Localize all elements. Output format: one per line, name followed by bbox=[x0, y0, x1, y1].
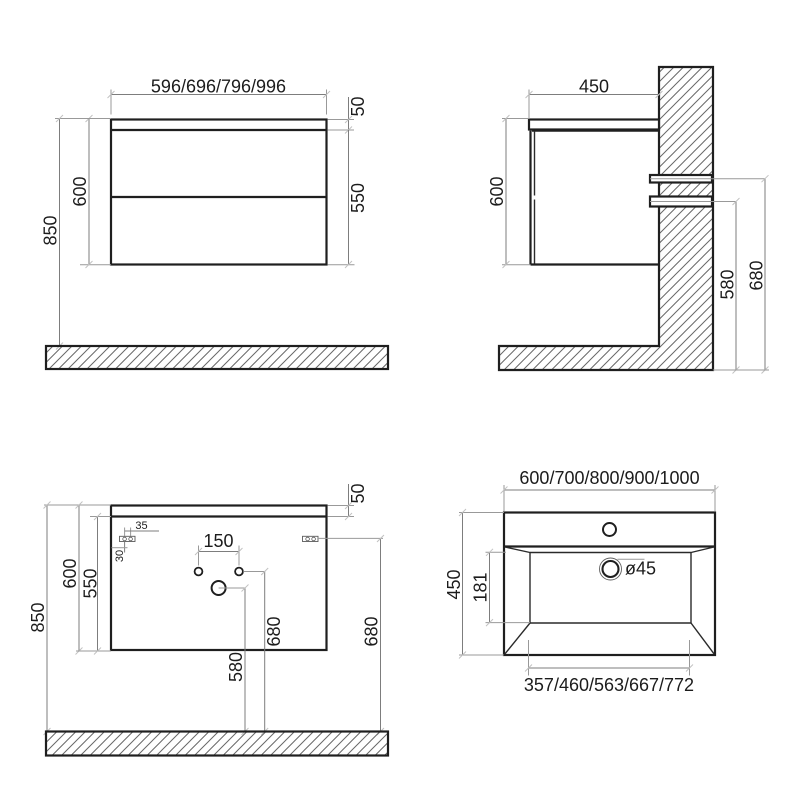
svg-text:600/700/800/900/1000: 600/700/800/900/1000 bbox=[519, 468, 699, 488]
svg-text:550: 550 bbox=[81, 568, 101, 598]
svg-text:181: 181 bbox=[471, 572, 491, 602]
svg-text:ø45: ø45 bbox=[625, 559, 656, 579]
svg-text:596/696/796/996: 596/696/796/996 bbox=[151, 77, 286, 97]
svg-text:680: 680 bbox=[747, 260, 767, 290]
svg-text:850: 850 bbox=[41, 215, 61, 245]
svg-text:357/460/563/667/772: 357/460/563/667/772 bbox=[524, 675, 694, 695]
svg-text:600: 600 bbox=[60, 558, 80, 588]
svg-text:50: 50 bbox=[348, 483, 368, 503]
svg-text:850: 850 bbox=[28, 602, 48, 632]
svg-text:35: 35 bbox=[135, 520, 147, 532]
svg-text:450: 450 bbox=[579, 77, 609, 97]
svg-text:680: 680 bbox=[264, 616, 284, 646]
svg-text:150: 150 bbox=[203, 531, 233, 551]
svg-text:680: 680 bbox=[362, 616, 382, 646]
svg-text:580: 580 bbox=[226, 652, 246, 682]
svg-text:450: 450 bbox=[444, 569, 464, 599]
svg-text:580: 580 bbox=[718, 269, 738, 299]
svg-text:30: 30 bbox=[114, 550, 126, 562]
svg-text:50: 50 bbox=[348, 96, 368, 116]
svg-text:550: 550 bbox=[348, 183, 368, 213]
svg-text:600: 600 bbox=[487, 176, 507, 206]
svg-text:600: 600 bbox=[70, 176, 90, 206]
